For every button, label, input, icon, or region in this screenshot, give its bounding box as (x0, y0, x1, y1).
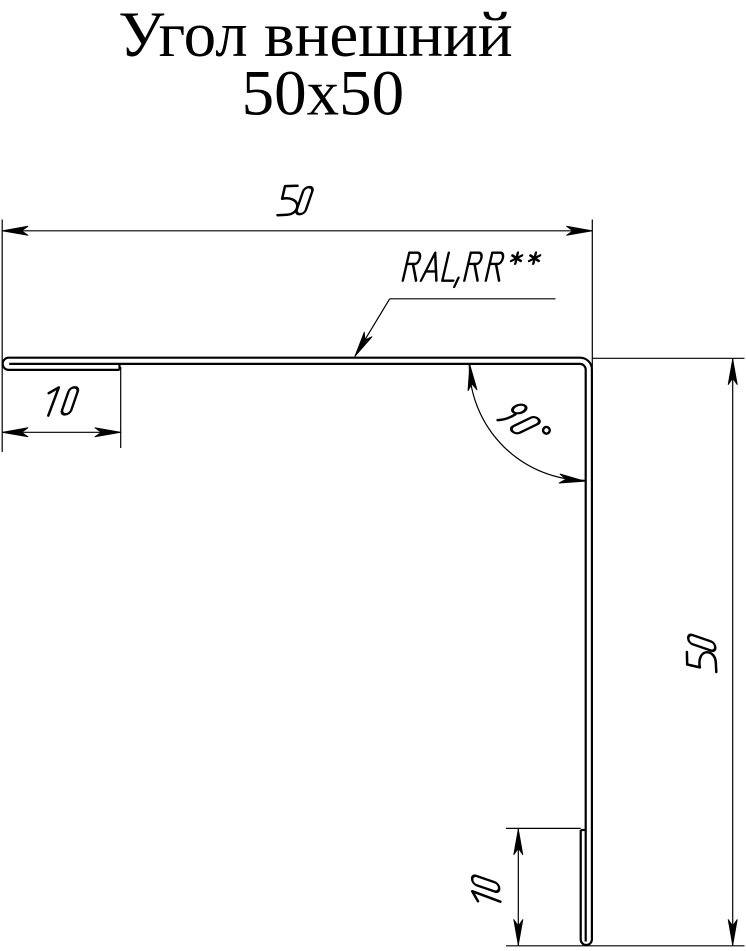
svg-text:50x50: 50x50 (242, 58, 405, 130)
